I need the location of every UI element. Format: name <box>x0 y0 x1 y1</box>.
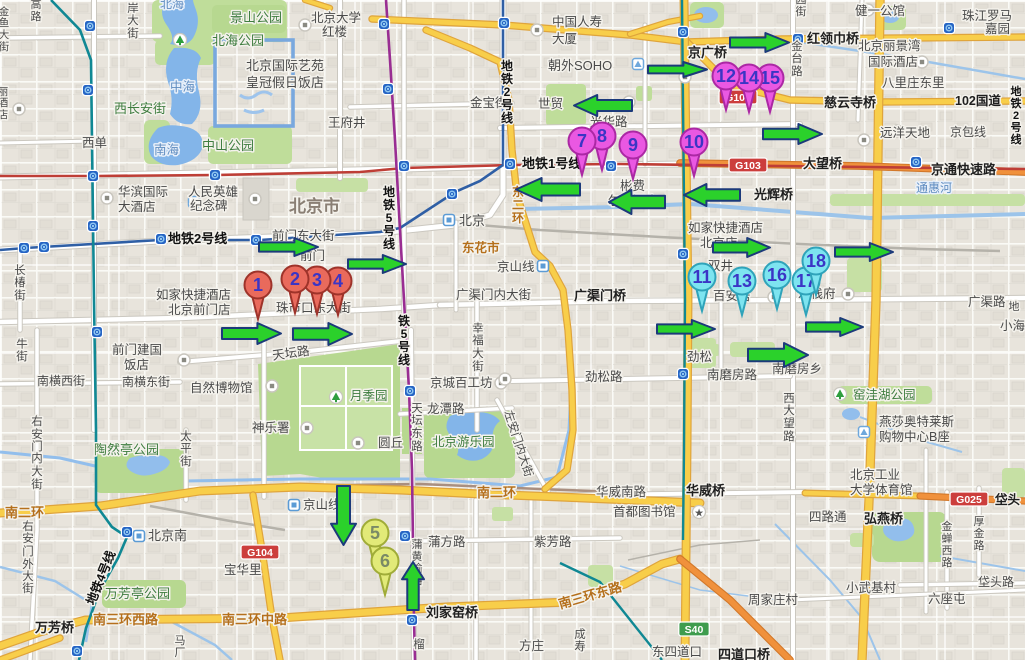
svg-text:金鱼大街: 金鱼大街 <box>0 5 10 53</box>
svg-text:9: 9 <box>628 135 638 155</box>
svg-text:华滨国际: 华滨国际 <box>118 184 168 199</box>
svg-text:燕莎奥特莱斯: 燕莎奥特莱斯 <box>879 414 954 429</box>
svg-text:东四道口: 东四道口 <box>652 645 702 659</box>
svg-text:3: 3 <box>312 270 322 290</box>
svg-text:幸福大街: 幸福大街 <box>472 322 484 373</box>
svg-text:高路: 高路 <box>31 0 42 23</box>
svg-text:丽酒店: 丽酒店 <box>0 86 9 121</box>
svg-text:14: 14 <box>739 68 759 88</box>
svg-text:万芳亭公园: 万芳亭公园 <box>105 586 170 601</box>
svg-text:北京工业: 北京工业 <box>850 468 900 482</box>
svg-text:北海公园: 北海公园 <box>212 33 264 48</box>
svg-text:★: ★ <box>694 508 704 520</box>
svg-text:京城百工坊: 京城百工坊 <box>430 375 493 390</box>
svg-text:成寿: 成寿 <box>574 628 586 653</box>
svg-text:刘家窑桥: 刘家窑桥 <box>426 605 479 620</box>
svg-text:南横东街: 南横东街 <box>122 374 170 389</box>
svg-text:前门建国: 前门建国 <box>112 342 162 357</box>
svg-text:中国人寿: 中国人寿 <box>552 14 602 29</box>
svg-text:右安门外大街: 右安门外大街 <box>22 519 34 595</box>
svg-text:朝外SOHO: 朝外SOHO <box>548 58 612 73</box>
svg-text:圆丘: 圆丘 <box>378 436 403 450</box>
svg-text:长椿街: 长椿街 <box>14 264 26 302</box>
svg-text:北京游乐园: 北京游乐园 <box>432 435 495 449</box>
svg-text:G025: G025 <box>956 494 982 506</box>
svg-text:金台路: 金台路 <box>791 39 803 78</box>
svg-text:自然博物馆: 自然博物馆 <box>190 380 253 395</box>
svg-text:G104: G104 <box>247 547 273 559</box>
svg-text:健一公馆: 健一公馆 <box>855 3 905 18</box>
svg-text:大望桥: 大望桥 <box>803 156 843 171</box>
svg-text:南三环中路: 南三环中路 <box>222 612 288 627</box>
svg-text:窑洼湖公园: 窑洼湖公园 <box>853 387 916 402</box>
svg-text:六座屯: 六座屯 <box>928 591 966 606</box>
svg-text:如家快捷酒店: 如家快捷酒店 <box>156 287 231 302</box>
svg-text:垈头路: 垈头路 <box>978 574 1014 589</box>
svg-text:万芳桥: 万芳桥 <box>34 620 75 635</box>
svg-text:太平街: 太平街 <box>180 430 192 468</box>
svg-text:购物中心B座: 购物中心B座 <box>879 429 950 444</box>
svg-text:月季园: 月季园 <box>350 389 388 403</box>
svg-text:厚金路: 厚金路 <box>974 515 985 552</box>
svg-text:中海: 中海 <box>170 79 196 94</box>
svg-text:蒲方路: 蒲方路 <box>428 534 466 549</box>
svg-text:4: 4 <box>333 271 343 291</box>
svg-text:102国道: 102国道 <box>955 93 1001 108</box>
svg-text:劲松: 劲松 <box>687 350 712 364</box>
svg-text:华威南路: 华威南路 <box>596 484 647 499</box>
svg-text:南二环: 南二环 <box>5 505 44 520</box>
svg-text:周家庄村: 周家庄村 <box>748 592 799 607</box>
svg-text:京山线: 京山线 <box>303 498 341 512</box>
svg-text:10: 10 <box>684 132 704 152</box>
svg-text:园街: 园街 <box>796 0 807 18</box>
svg-text:嘉园: 嘉园 <box>985 22 1010 36</box>
svg-text:7: 7 <box>577 131 587 151</box>
svg-text:珠江罗马: 珠江罗马 <box>962 9 1012 23</box>
svg-text:北京市: 北京市 <box>289 196 340 216</box>
svg-text:大厦: 大厦 <box>552 32 577 46</box>
svg-text:京包线: 京包线 <box>950 125 986 139</box>
svg-text:景山公园: 景山公园 <box>230 10 282 25</box>
svg-text:南三环西路: 南三环西路 <box>93 612 159 627</box>
svg-text:广渠路: 广渠路 <box>968 294 1006 309</box>
svg-text:大学体育馆: 大学体育馆 <box>850 482 913 497</box>
svg-text:皇冠假日饭店: 皇冠假日饭店 <box>246 75 324 90</box>
svg-text:弘燕桥: 弘燕桥 <box>864 511 904 526</box>
svg-text:方庄: 方庄 <box>519 638 544 653</box>
svg-text:京通快速路: 京通快速路 <box>931 162 997 177</box>
svg-text:南二环: 南二环 <box>477 485 516 500</box>
svg-text:彬费: 彬费 <box>620 179 645 193</box>
svg-text:大酒店: 大酒店 <box>118 200 156 214</box>
svg-text:8: 8 <box>597 126 607 146</box>
svg-text:1: 1 <box>253 275 263 295</box>
svg-text:陶然亭公园: 陶然亭公园 <box>94 442 159 457</box>
svg-text:18: 18 <box>806 251 826 271</box>
svg-text:地铁1号线: 地铁1号线 <box>522 156 581 171</box>
svg-text:饭店: 饭店 <box>124 358 149 372</box>
svg-text:天坛东路: 天坛东路 <box>411 403 423 453</box>
svg-text:金蝉西路: 金蝉西路 <box>942 519 953 569</box>
svg-text:首都图书馆: 首都图书馆 <box>613 504 676 519</box>
svg-text:岸大街: 岸大街 <box>127 2 139 40</box>
svg-text:南磨房路: 南磨房路 <box>707 367 758 382</box>
svg-text:北京大学: 北京大学 <box>311 10 361 25</box>
svg-text:地: 地 <box>1009 300 1020 313</box>
svg-text:宝华里: 宝华里 <box>224 562 262 577</box>
svg-text:如家快捷酒店: 如家快捷酒店 <box>688 220 763 235</box>
svg-text:5: 5 <box>370 523 380 543</box>
svg-text:北京南: 北京南 <box>148 528 187 543</box>
svg-text:远洋天地: 远洋天地 <box>880 125 931 140</box>
svg-text:地铁2号线: 地铁2号线 <box>168 231 227 246</box>
svg-text:北京丽景湾: 北京丽景湾 <box>858 38 921 53</box>
svg-text:世贸: 世贸 <box>538 97 563 111</box>
svg-text:南海: 南海 <box>154 142 180 157</box>
svg-text:11: 11 <box>692 267 711 287</box>
svg-text:京山线: 京山线 <box>497 260 535 274</box>
svg-text:光辉桥: 光辉桥 <box>753 187 794 202</box>
svg-text:北海: 北海 <box>160 0 184 11</box>
svg-text:红楼: 红楼 <box>322 24 347 39</box>
svg-text:慈云寺桥: 慈云寺桥 <box>824 95 877 110</box>
svg-text:龙潭路: 龙潭路 <box>427 401 465 416</box>
svg-text:榴: 榴 <box>413 637 425 651</box>
svg-text:四路通: 四路通 <box>809 509 847 524</box>
svg-text:垈头: 垈头 <box>994 492 1021 507</box>
svg-text:北京国际艺苑: 北京国际艺苑 <box>246 58 324 73</box>
svg-text:东花市: 东花市 <box>462 240 500 255</box>
svg-text:13: 13 <box>732 271 752 291</box>
svg-text:南横西街: 南横西街 <box>37 373 85 388</box>
svg-text:铁5号线: 铁5号线 <box>398 313 410 367</box>
svg-text:纪念碑: 纪念碑 <box>190 198 228 213</box>
svg-text:京广桥: 京广桥 <box>688 45 728 60</box>
svg-text:S40: S40 <box>685 624 704 636</box>
svg-text:6: 6 <box>380 551 390 571</box>
svg-text:通惠河: 通惠河 <box>916 181 952 195</box>
svg-text:中山公园: 中山公园 <box>202 138 254 153</box>
svg-text:牛街: 牛街 <box>16 337 28 363</box>
svg-text:神乐署: 神乐署 <box>252 421 290 435</box>
svg-text:G103: G103 <box>735 160 761 172</box>
svg-text:小海: 小海 <box>1000 318 1025 333</box>
svg-text:西单: 西单 <box>82 136 107 150</box>
svg-text:右安门内大街: 右安门内大街 <box>31 414 43 491</box>
svg-text:马厂: 马厂 <box>175 634 186 659</box>
svg-text:西长安街: 西长安街 <box>114 101 166 116</box>
svg-text:劲松路: 劲松路 <box>585 369 623 384</box>
svg-text:2: 2 <box>290 269 300 289</box>
svg-text:12: 12 <box>716 66 736 86</box>
svg-text:北京: 北京 <box>459 213 485 228</box>
svg-text:人民英雄: 人民英雄 <box>188 184 238 199</box>
svg-text:北京前门店: 北京前门店 <box>168 302 231 317</box>
svg-text:国际酒店: 国际酒店 <box>868 55 918 69</box>
svg-text:红领巾桥: 红领巾桥 <box>807 31 860 46</box>
svg-text:广渠门桥: 广渠门桥 <box>574 288 627 303</box>
svg-text:南磨房乡: 南磨房乡 <box>772 361 822 376</box>
svg-text:小武基村: 小武基村 <box>846 581 897 595</box>
svg-text:广渠门内大街: 广渠门内大街 <box>456 287 531 302</box>
svg-text:王府井: 王府井 <box>328 115 366 130</box>
svg-text:16: 16 <box>767 265 787 285</box>
svg-text:四道口桥: 四道口桥 <box>718 647 771 660</box>
svg-text:西大望路: 西大望路 <box>783 393 795 443</box>
svg-text:紫芳路: 紫芳路 <box>534 534 572 549</box>
svg-text:八里庄东里: 八里庄东里 <box>882 75 945 90</box>
svg-text:华威桥: 华威桥 <box>686 483 726 498</box>
